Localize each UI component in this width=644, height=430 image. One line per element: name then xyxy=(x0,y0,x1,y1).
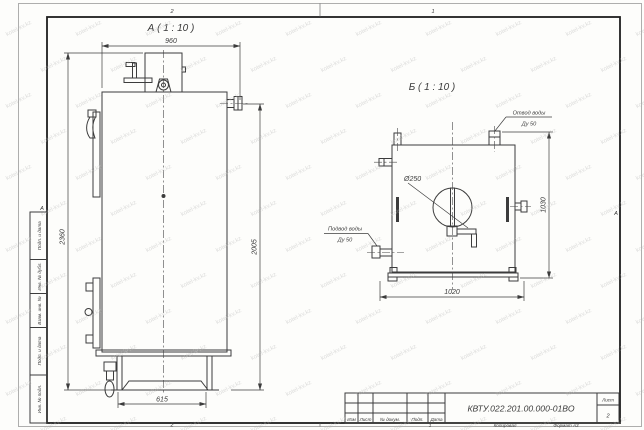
view-b-title: Б ( 1 : 10 ) xyxy=(409,82,456,93)
tb-col: Изм xyxy=(347,417,356,422)
tb-col: Дата xyxy=(429,417,443,422)
fold-mark-right: А xyxy=(613,211,618,217)
top-left-stub xyxy=(394,128,401,152)
tick-bar xyxy=(396,197,399,222)
side-stamp-label: Инв. № дубл. xyxy=(37,262,42,290)
view-a: А ( 1 : 10 ) xyxy=(60,23,265,408)
fold-mark-left: А xyxy=(39,206,44,212)
boiler-body-front xyxy=(102,92,227,352)
sheet-number: 2 xyxy=(605,414,610,420)
tb-col: № докум. xyxy=(380,417,400,422)
dim-text: 615 xyxy=(156,397,168,404)
inlet-callout: Подвод воды Ду 50 xyxy=(324,227,377,247)
dim-width-b: 1020 xyxy=(380,281,524,301)
doc-number: КВТУ.022.201.00.000-01ВО xyxy=(467,404,574,414)
side-stamp-label: Взам. инв. № xyxy=(37,296,42,324)
lower-door xyxy=(85,278,100,348)
sheet-label: Лист xyxy=(601,398,614,403)
chimney-stub xyxy=(220,97,249,111)
footer-format: Формат А3 xyxy=(553,423,579,428)
base-rail xyxy=(388,268,518,282)
left-top-stub xyxy=(374,159,399,167)
center-point xyxy=(162,194,166,198)
water-inlet-stub xyxy=(367,246,404,258)
outlet-size: Ду 50 xyxy=(521,122,537,128)
outlet-callout: Отвод воды Ду 50 xyxy=(495,111,553,132)
view-b: Б ( 1 : 10 ) xyxy=(324,82,553,301)
paper-border xyxy=(19,4,642,427)
drawing-canvas: 2 1 2 А А Подп. и дата Инв. № дубл. Взам… xyxy=(0,0,644,430)
tick-bar xyxy=(506,197,509,222)
title-block: Изм Лист № докум. Подп. Дата КВТУ.022.20… xyxy=(345,393,619,428)
inlet-size: Ду 50 xyxy=(337,238,353,244)
dim-text: 960 xyxy=(165,38,177,45)
dim-text: 1020 xyxy=(444,289,460,296)
right-stub xyxy=(510,201,531,212)
side-stamp-label: Подп. и дата xyxy=(37,336,42,365)
dim-text: 1030 xyxy=(541,197,548,213)
water-outlet-stub xyxy=(489,126,500,152)
tb-col: Подп. xyxy=(411,417,423,422)
crank-handle xyxy=(447,188,477,247)
outlet-label: Отвод воды xyxy=(513,111,546,117)
footer-copy: Копировал xyxy=(494,423,517,428)
side-stamp-label: Подп. и дата xyxy=(37,221,42,250)
zone-number: 2 xyxy=(169,9,174,15)
dim-height-right: 2005 xyxy=(231,104,264,390)
ash-handle xyxy=(104,362,116,397)
upper-door xyxy=(87,110,100,197)
dim-text: 2005 xyxy=(252,239,259,256)
boiler-body-back xyxy=(392,145,515,272)
drawing-sheet: 2 1 2 А А Подп. и дата Инв. № дубл. Взам… xyxy=(0,0,644,430)
zone-number: 1 xyxy=(431,9,434,15)
inlet-label: Подвод воды xyxy=(328,227,362,233)
side-stamp-label: Инв. № подл. xyxy=(37,385,42,414)
tb-col: Лист xyxy=(359,417,372,422)
footer-zone: 1 xyxy=(429,423,432,428)
dim-base-width: 615 xyxy=(118,392,206,408)
side-stamp: Подп. и дата Инв. № дубл. Взам. инв. № П… xyxy=(30,212,47,423)
hole-diameter-label: Ø250 xyxy=(403,176,421,183)
damper-lever xyxy=(124,63,152,83)
view-a-title: А ( 1 : 10 ) xyxy=(147,23,195,34)
dim-height-overall: 2360 xyxy=(60,53,144,390)
sheet-frame: 2 1 2 А А xyxy=(19,4,642,429)
dim-text: 2360 xyxy=(60,229,67,246)
